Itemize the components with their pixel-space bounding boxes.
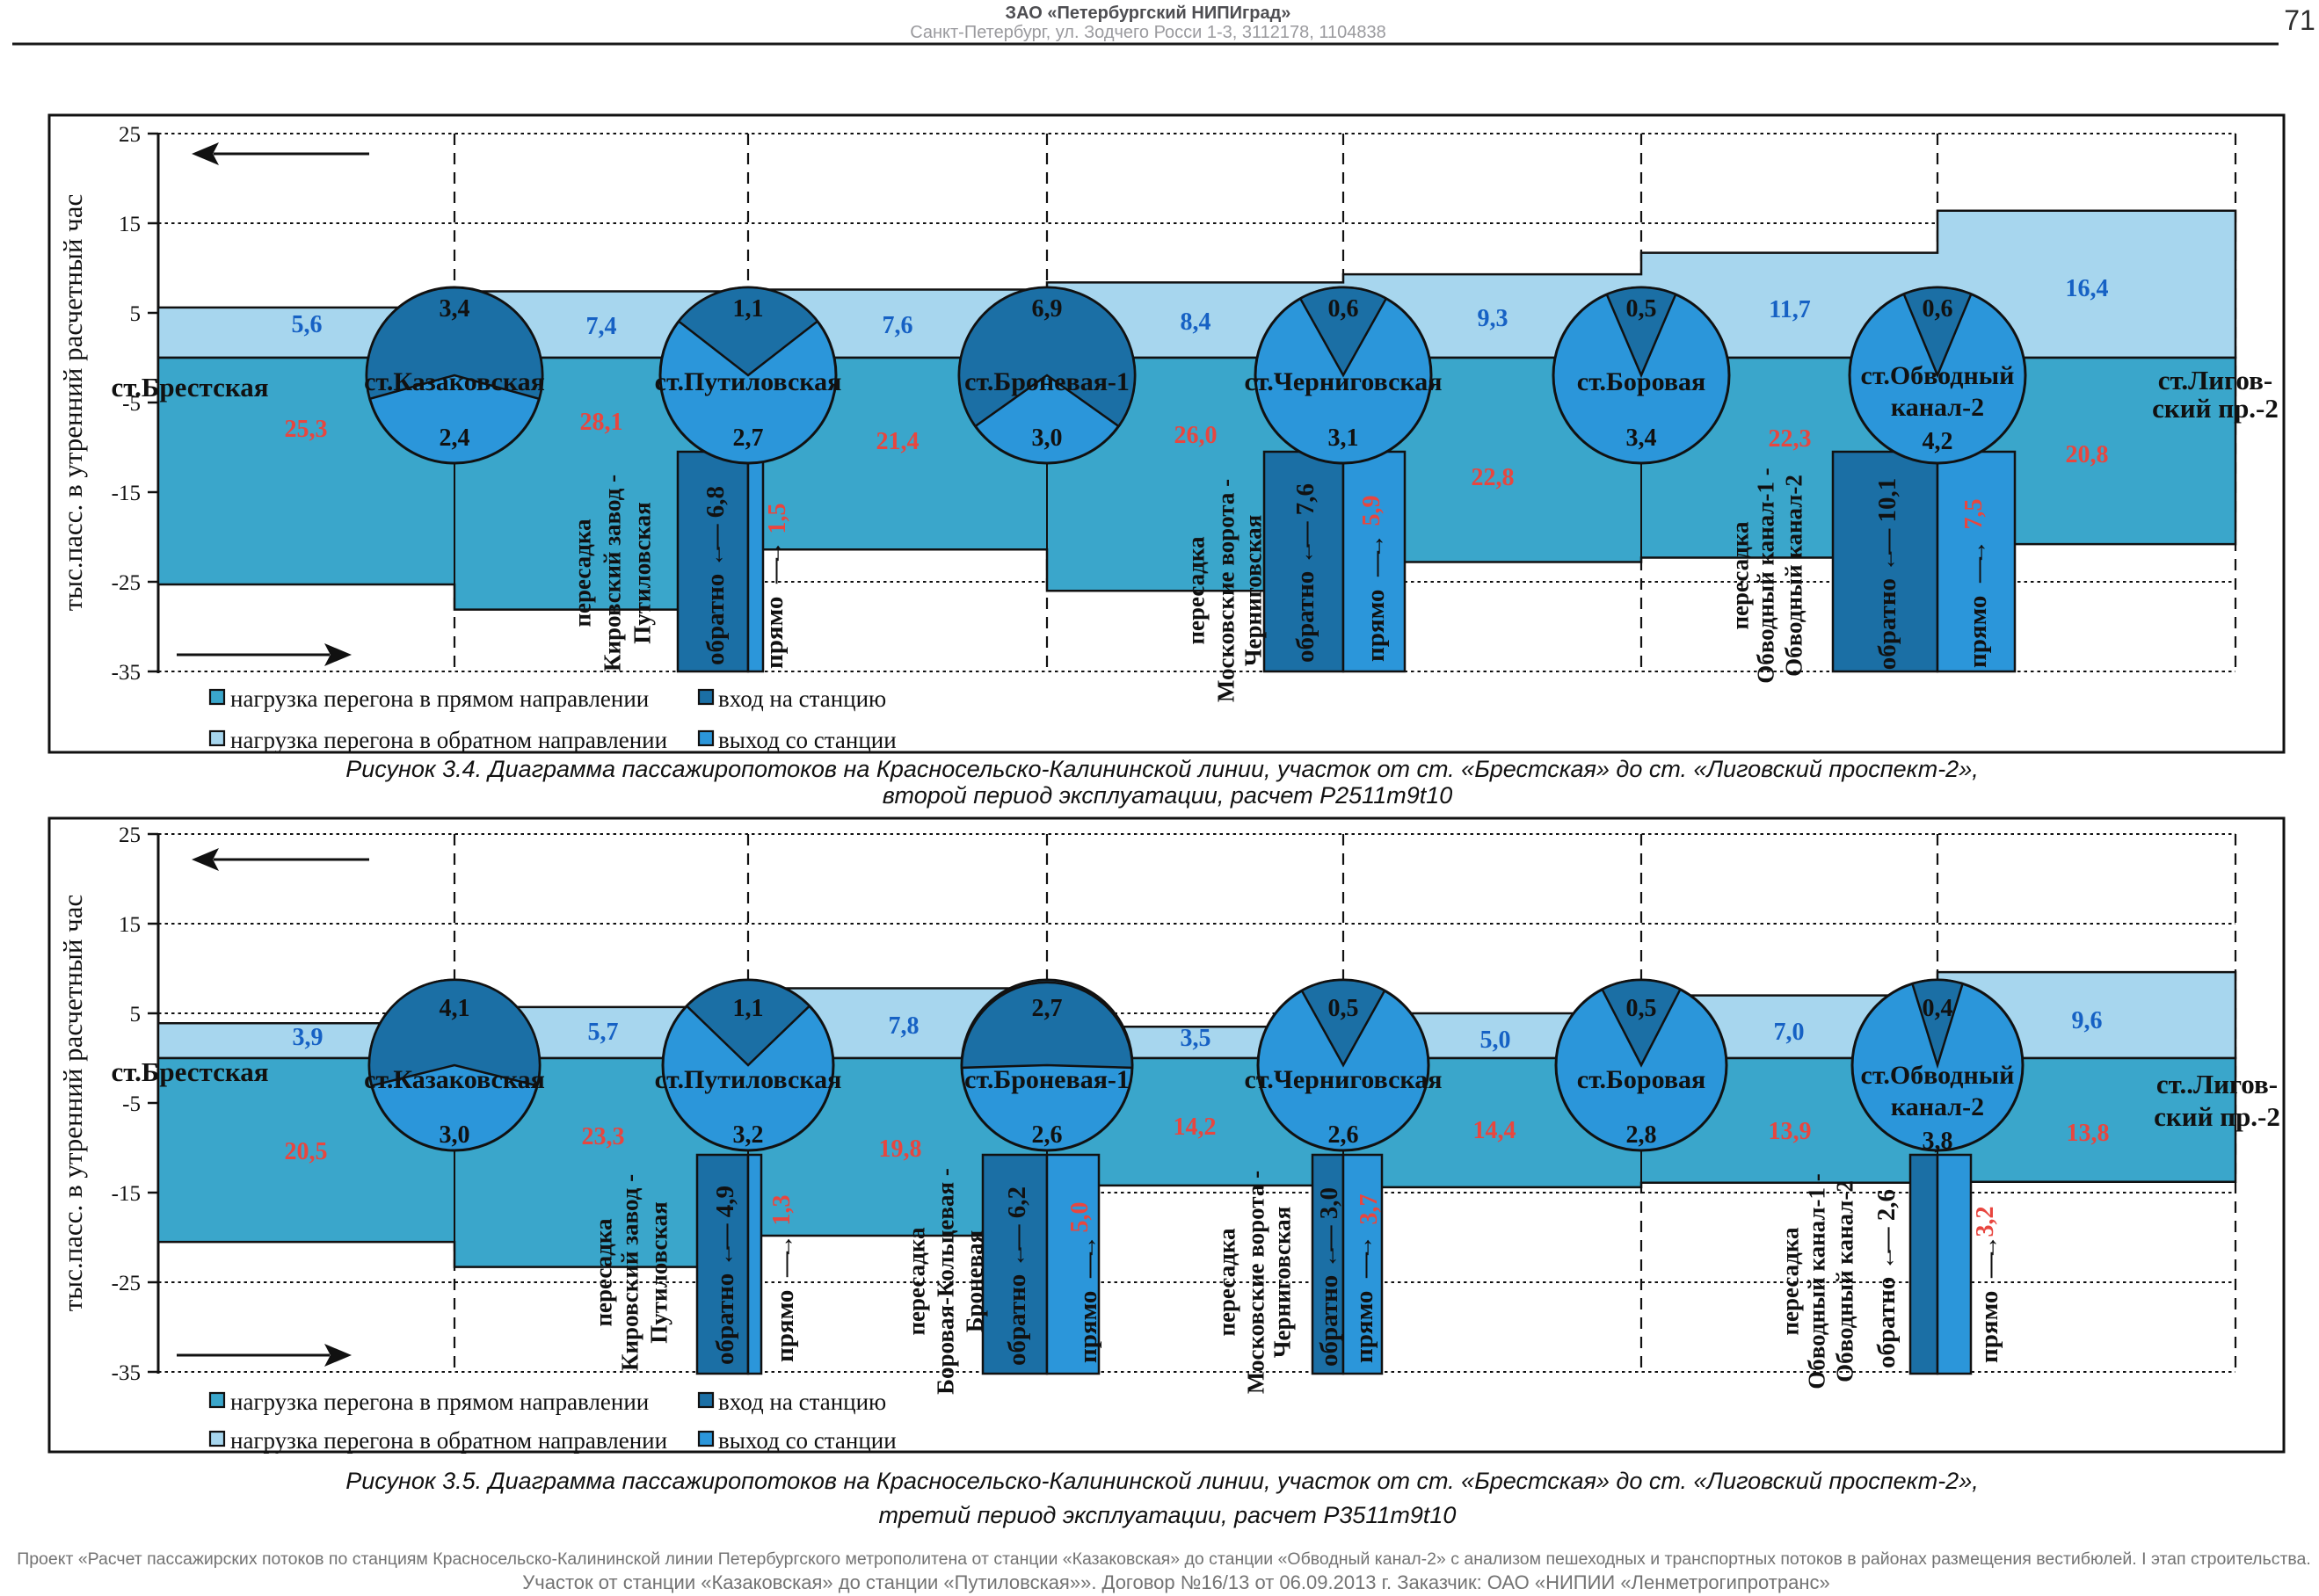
svg-text:обратно ←— 7,6: обратно ←— 7,6 [1291, 483, 1319, 663]
svg-text:ст.Обводный: ст.Обводный [1861, 1061, 2015, 1090]
svg-text:13,8: 13,8 [2067, 1120, 2110, 1147]
svg-text:1,3: 1,3 [768, 1195, 796, 1226]
svg-text:ст.Брестская: ст.Брестская [111, 1056, 268, 1087]
svg-text:ский пр.-2: ский пр.-2 [2154, 1101, 2280, 1132]
svg-text:Рисунок 3.5. Диаграмма пассажи: Рисунок 3.5. Диаграмма пассажиропотоков … [345, 1468, 1978, 1494]
svg-text:Путиловская: Путиловская [629, 502, 655, 643]
svg-text:3,2: 3,2 [1972, 1207, 1999, 1237]
svg-text:Броневая: Броневая [961, 1230, 987, 1333]
svg-text:1,1: 1,1 [733, 995, 764, 1022]
svg-text:ст.Брестская: ст.Брестская [111, 372, 268, 403]
svg-text:5: 5 [130, 1003, 142, 1027]
svg-text:4,2: 4,2 [1923, 428, 1953, 455]
svg-text:ст.Лигов-: ст.Лигов- [2158, 365, 2272, 395]
svg-text:26,0: 26,0 [1174, 422, 1218, 449]
svg-text:3,4: 3,4 [440, 295, 470, 323]
svg-text:22,8: 22,8 [1472, 464, 1515, 491]
svg-text:0,5: 0,5 [1626, 295, 1657, 323]
svg-text:вход на станцию: вход на станцию [718, 686, 886, 712]
svg-text:23,3: 23,3 [582, 1123, 625, 1150]
svg-text:ст.Броневая-1: ст.Броневая-1 [964, 1065, 1130, 1094]
svg-text:пересадка: пересадка [1213, 1228, 1239, 1336]
svg-text:прямо —→: прямо —→ [1074, 1235, 1102, 1363]
svg-text:3,2: 3,2 [733, 1121, 764, 1149]
svg-text:прямо —→: прямо —→ [1362, 533, 1390, 662]
svg-text:Московские ворота -: Московские ворота - [1242, 1171, 1269, 1394]
svg-text:Участок от станции «Казаковска: Участок от станции «Казаковская» до стан… [522, 1571, 1829, 1593]
svg-text:3,9: 3,9 [293, 1024, 323, 1051]
svg-text:обратно ←— 4,9: обратно ←— 4,9 [711, 1186, 739, 1365]
svg-text:0,5: 0,5 [1626, 995, 1657, 1022]
svg-text:ст.Черниговская: ст.Черниговская [1245, 367, 1443, 396]
svg-text:-15: -15 [112, 1182, 141, 1206]
svg-text:Рисунок 3.4. Диаграмма пассажи: Рисунок 3.4. Диаграмма пассажиропотоков … [345, 756, 1978, 782]
svg-text:обратно ←— 6,8: обратно ←— 6,8 [702, 486, 730, 665]
svg-text:обратно ←— 10,1: обратно ←— 10,1 [1873, 478, 1901, 671]
svg-text:Обводный канал-1 -: Обводный канал-1 - [1752, 468, 1778, 684]
svg-text:прямо —→: прямо —→ [760, 540, 789, 669]
svg-text:ст.Путиловская: ст.Путиловская [655, 1065, 842, 1094]
svg-text:3,0: 3,0 [440, 1121, 470, 1149]
svg-text:обратно ←— 2,6: обратно ←— 2,6 [1872, 1189, 1901, 1368]
svg-text:2,8: 2,8 [1626, 1121, 1657, 1149]
svg-text:0,6: 0,6 [1328, 295, 1359, 323]
svg-text:третий период эксплуатации, ра: третий период эксплуатации, расчет Р3511… [879, 1502, 1457, 1528]
svg-text:3,1: 3,1 [1328, 424, 1359, 452]
svg-text:15: 15 [119, 213, 141, 236]
svg-text:7,4: 7,4 [586, 313, 617, 340]
svg-text:канал-2: канал-2 [1891, 1092, 1984, 1121]
svg-text:ст.Казаковская: ст.Казаковская [364, 1065, 545, 1094]
svg-text:ст.Черниговская: ст.Черниговская [1245, 1065, 1443, 1094]
svg-text:тыс.пасс. в утренний расчетный: тыс.пасс. в утренний расчетный час [57, 895, 88, 1312]
svg-text:пересадка: пересадка [1182, 536, 1209, 644]
svg-text:16,4: 16,4 [2066, 275, 2109, 302]
svg-text:прямо —→: прямо —→ [1964, 540, 1992, 668]
svg-text:ст.Броневая-1: ст.Броневая-1 [964, 367, 1130, 396]
svg-text:ст.Боровая: ст.Боровая [1577, 1065, 1706, 1094]
svg-text:канал-2: канал-2 [1891, 393, 1984, 422]
svg-text:71: 71 [2284, 4, 2315, 36]
svg-text:прямо —→: прямо —→ [771, 1234, 799, 1362]
svg-text:3,0: 3,0 [1032, 424, 1063, 452]
svg-text:9,6: 9,6 [2072, 1007, 2103, 1034]
svg-text:-25: -25 [112, 571, 141, 595]
svg-text:7,5: 7,5 [1960, 499, 1988, 530]
svg-text:2,7: 2,7 [1032, 995, 1063, 1022]
svg-text:пересадка: пересадка [1727, 521, 1753, 629]
svg-text:выход со станции: выход со станции [718, 727, 897, 753]
svg-text:13,9: 13,9 [1769, 1118, 1812, 1145]
svg-text:2,4: 2,4 [440, 424, 470, 452]
svg-text:Черниговская: Черниговская [1269, 1207, 1295, 1359]
svg-text:5,6: 5,6 [292, 311, 323, 338]
svg-text:5,7: 5,7 [588, 1019, 619, 1046]
svg-text:ст.Путиловская: ст.Путиловская [655, 367, 842, 396]
svg-text:нагрузка перегона в прямом нап: нагрузка перегона в прямом направлении [230, 686, 649, 712]
svg-text:11,7: 11,7 [1769, 296, 1810, 323]
svg-text:пересадка: пересадка [1777, 1227, 1803, 1335]
svg-text:3,4: 3,4 [1626, 424, 1657, 452]
svg-text:1,1: 1,1 [733, 295, 764, 323]
svg-text:Обводный канал-2: Обводный канал-2 [1831, 1180, 1857, 1382]
svg-text:5,9: 5,9 [1358, 496, 1385, 526]
svg-text:ст.Казаковская: ст.Казаковская [364, 367, 545, 396]
svg-text:-35: -35 [112, 661, 141, 685]
svg-text:0,4: 0,4 [1923, 995, 1953, 1022]
svg-text:5,0: 5,0 [1480, 1027, 1511, 1054]
svg-text:ский пр.-2: ский пр.-2 [2152, 393, 2279, 424]
svg-text:ст..Лигов-: ст..Лигов- [2156, 1069, 2278, 1099]
svg-text:5,0: 5,0 [1066, 1202, 1094, 1233]
svg-text:-25: -25 [112, 1272, 141, 1295]
svg-text:ЗАО «Петербургский НИПИград»: ЗАО «Петербургский НИПИград» [1006, 4, 1291, 23]
svg-text:-15: -15 [112, 482, 141, 505]
svg-text:5: 5 [130, 302, 142, 326]
svg-text:9,3: 9,3 [1478, 305, 1508, 332]
svg-text:ст.Обводный: ст.Обводный [1861, 361, 2015, 390]
svg-text:7,0: 7,0 [1774, 1019, 1805, 1046]
svg-text:25: 25 [119, 123, 141, 147]
svg-text:0,6: 0,6 [1923, 295, 1953, 323]
svg-text:15: 15 [119, 913, 141, 937]
svg-text:-5: -5 [122, 1092, 141, 1116]
svg-text:4,1: 4,1 [440, 995, 470, 1022]
svg-text:19,8: 19,8 [879, 1135, 922, 1163]
svg-text:20,8: 20,8 [2066, 441, 2109, 468]
svg-text:нагрузка перегона в прямом нап: нагрузка перегона в прямом направлении [230, 1389, 649, 1415]
svg-text:2,6: 2,6 [1328, 1121, 1359, 1149]
svg-text:Обводный канал-2: Обводный канал-2 [1780, 475, 1806, 677]
svg-text:7,6: 7,6 [883, 312, 913, 339]
svg-text:0,5: 0,5 [1328, 995, 1359, 1022]
svg-text:тыс.пасс. в утренний расчетный: тыс.пасс. в утренний расчетный час [57, 194, 88, 612]
svg-text:Кировский завод -: Кировский завод - [616, 1174, 643, 1371]
svg-text:21,4: 21,4 [876, 428, 920, 455]
svg-text:Обводный канал-1 -: Обводный канал-1 - [1803, 1173, 1829, 1389]
svg-text:3,8: 3,8 [1923, 1128, 1953, 1155]
svg-text:прямо —→: прямо —→ [1350, 1235, 1378, 1363]
svg-text:Проект «Расчет пассажирских по: Проект «Расчет пассажирских потоков по с… [17, 1549, 2311, 1569]
svg-text:22,3: 22,3 [1769, 425, 1812, 453]
svg-text:25,3: 25,3 [285, 416, 328, 443]
svg-text:пересадка: пересадка [569, 519, 595, 627]
svg-text:28,1: 28,1 [580, 409, 623, 436]
svg-text:20,5: 20,5 [285, 1138, 328, 1165]
svg-text:Московские ворота -: Московские ворота - [1212, 479, 1239, 702]
svg-text:пересадка: пересадка [903, 1227, 929, 1335]
svg-text:пересадка: пересадка [590, 1218, 616, 1326]
svg-text:Кировский завод -: Кировский завод - [599, 475, 625, 671]
svg-text:2,7: 2,7 [733, 424, 764, 452]
svg-text:Черниговская: Черниговская [1239, 515, 1266, 667]
svg-text:25: 25 [119, 823, 141, 847]
svg-text:7,8: 7,8 [889, 1012, 920, 1040]
svg-text:прямо —→: прямо —→ [1975, 1235, 2003, 1363]
svg-text:ст.Боровая: ст.Боровая [1577, 367, 1706, 396]
svg-text:14,4: 14,4 [1473, 1117, 1516, 1144]
svg-text:обратно ←— 6,2: обратно ←— 6,2 [1003, 1186, 1031, 1366]
svg-text:-35: -35 [112, 1361, 141, 1385]
svg-text:нагрузка перегона в обратном н: нагрузка перегона в обратном направлении [230, 727, 667, 753]
svg-text:6,9: 6,9 [1032, 295, 1063, 323]
svg-text:нагрузка перегона в обратном н: нагрузка перегона в обратном направлении [230, 1427, 667, 1454]
svg-text:3,7: 3,7 [1356, 1194, 1383, 1225]
svg-text:8,4: 8,4 [1181, 308, 1211, 336]
svg-text:Санкт-Петербург, ул. Зодчего Р: Санкт-Петербург, ул. Зодчего Росси 1-3, … [910, 23, 1386, 42]
svg-text:2,6: 2,6 [1032, 1121, 1063, 1149]
svg-text:второй период эксплуатации, ра: второй период эксплуатации, расчет Р2511… [883, 782, 1453, 809]
svg-text:Боровая-Кольцевая -: Боровая-Кольцевая - [932, 1168, 958, 1395]
svg-text:1,5: 1,5 [764, 504, 791, 534]
svg-text:14,2: 14,2 [1174, 1114, 1217, 1141]
svg-text:3,5: 3,5 [1181, 1025, 1211, 1052]
svg-text:выход со станции: выход со станции [718, 1427, 897, 1454]
svg-text:обратно ←— 3,0: обратно ←— 3,0 [1315, 1187, 1343, 1367]
svg-text:Путиловская: Путиловская [645, 1201, 672, 1343]
svg-text:вход на станцию: вход на станцию [718, 1389, 886, 1415]
